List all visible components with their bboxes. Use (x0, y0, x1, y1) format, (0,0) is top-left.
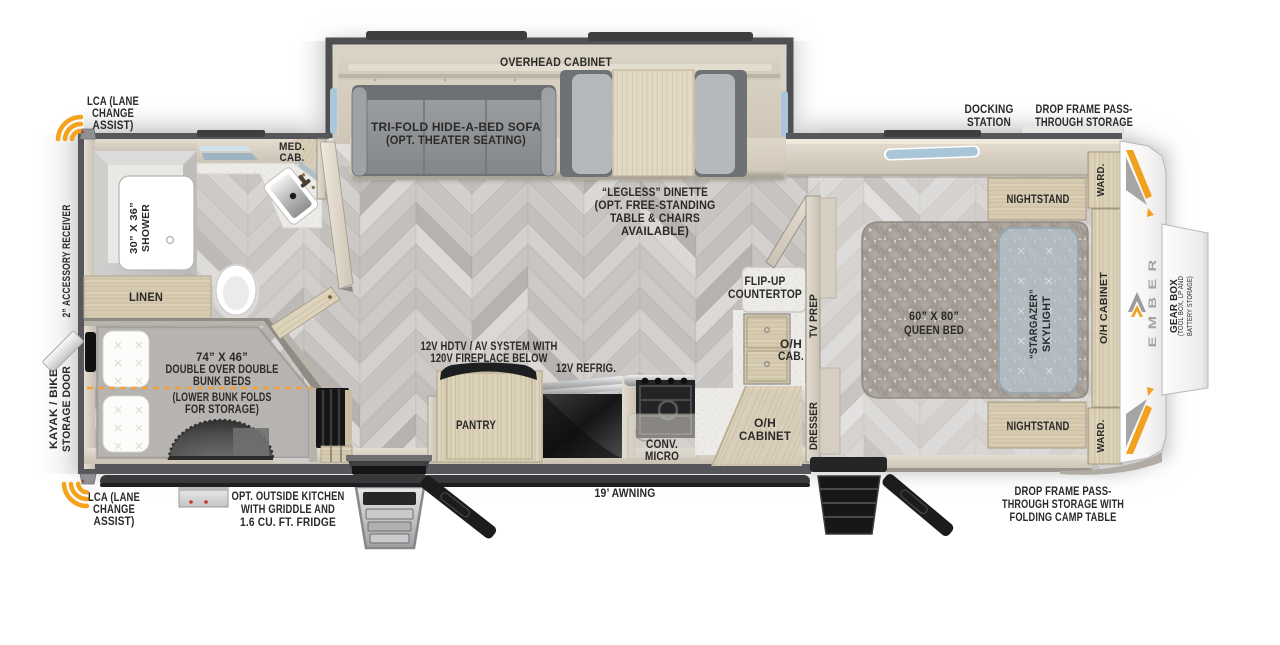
svg-text:SHOWER: SHOWER (141, 203, 152, 252)
svg-text:COUNTERTOP: COUNTERTOP (728, 289, 802, 301)
svg-text:FOR STORAGE): FOR STORAGE) (185, 404, 259, 416)
svg-text:60” X 80”: 60” X 80” (909, 311, 959, 323)
svg-text:BUNK BEDS: BUNK BEDS (193, 376, 251, 388)
svg-text:WARD.: WARD. (1095, 164, 1107, 197)
svg-text:12V HDTV / AV SYSTEM WITH: 12V HDTV / AV SYSTEM WITH (421, 341, 558, 353)
svg-text:DOCKING: DOCKING (965, 104, 1014, 116)
svg-text:THROUGH STORAGE: THROUGH STORAGE (1035, 117, 1133, 129)
svg-text:CONV.: CONV. (646, 439, 678, 451)
svg-text:WITH GRIDDLE AND: WITH GRIDDLE AND (241, 504, 335, 516)
svg-text:OVERHEAD CABINET: OVERHEAD CABINET (500, 57, 612, 69)
svg-text:KAYAK / BIKE: KAYAK / BIKE (48, 369, 60, 449)
svg-text:LCA (LANE: LCA (LANE (87, 96, 139, 108)
svg-text:FLIP-UP: FLIP-UP (745, 276, 786, 288)
svg-text:O/H: O/H (780, 339, 802, 351)
svg-text:AVAILABLE): AVAILABLE) (621, 226, 689, 238)
svg-text:30” X 36”: 30” X 36” (129, 202, 140, 254)
svg-text:FOLDING CAMP TABLE: FOLDING CAMP TABLE (1010, 512, 1117, 524)
svg-text:BATTERY STORAGE): BATTERY STORAGE) (1185, 276, 1194, 336)
svg-text:THROUGH STORAGE WITH: THROUGH STORAGE WITH (1002, 499, 1124, 511)
svg-text:120V FIREPLACE BELOW: 120V FIREPLACE BELOW (431, 353, 548, 365)
svg-text:QUEEN BED: QUEEN BED (904, 325, 964, 337)
svg-text:1.6 CU. FT. FRIDGE: 1.6 CU. FT. FRIDGE (240, 517, 336, 529)
svg-text:O/H CABINET: O/H CABINET (1098, 272, 1110, 344)
svg-text:DRESSER: DRESSER (808, 402, 820, 450)
svg-text:CHANGE: CHANGE (93, 504, 135, 516)
svg-text:TRI-FOLD HIDE-A-BED SOFA: TRI-FOLD HIDE-A-BED SOFA (371, 122, 541, 134)
svg-text:DROP FRAME PASS-: DROP FRAME PASS- (1036, 104, 1133, 116)
svg-text:“LEGLESS” DINETTE: “LEGLESS” DINETTE (602, 187, 708, 199)
svg-text:19’ AWNING: 19’ AWNING (595, 488, 656, 500)
svg-text:(LOWER BUNK FOLDS: (LOWER BUNK FOLDS (173, 392, 272, 404)
svg-text:WARD.: WARD. (1095, 420, 1107, 453)
svg-text:TV PREP: TV PREP (808, 294, 820, 338)
svg-text:O/H: O/H (754, 418, 776, 430)
svg-text:CAB.: CAB. (778, 351, 804, 363)
svg-text:CABINET: CABINET (739, 431, 791, 443)
svg-text:(TOOL BOX, LP AND: (TOOL BOX, LP AND (1176, 276, 1185, 336)
svg-text:SKYLIGHT: SKYLIGHT (1041, 296, 1053, 352)
svg-text:TABLE & CHAIRS: TABLE & CHAIRS (610, 213, 700, 225)
svg-text:LCA (LANE: LCA (LANE (88, 492, 140, 504)
svg-text:EMBER: EMBER (1147, 253, 1159, 348)
svg-text:2” ACCESSORY RECEIVER: 2” ACCESSORY RECEIVER (61, 205, 73, 318)
svg-text:DOUBLE OVER DOUBLE: DOUBLE OVER DOUBLE (166, 364, 279, 376)
svg-text:“STARGAZER”: “STARGAZER” (1028, 289, 1040, 359)
svg-text:ASSIST): ASSIST) (94, 516, 135, 528)
svg-text:12V REFRIG.: 12V REFRIG. (556, 363, 616, 375)
svg-text:PANTRY: PANTRY (456, 420, 496, 432)
svg-text:NIGHTSTAND: NIGHTSTAND (1007, 421, 1070, 433)
svg-text:(OPT. THEATER SEATING): (OPT. THEATER SEATING) (386, 135, 526, 147)
svg-text:CHANGE: CHANGE (92, 108, 134, 120)
svg-text:(OPT. FREE-STANDING: (OPT. FREE-STANDING (595, 200, 716, 212)
svg-text:OPT. OUTSIDE KITCHEN: OPT. OUTSIDE KITCHEN (232, 491, 345, 503)
svg-text:ASSIST): ASSIST) (93, 120, 134, 132)
svg-text:LINEN: LINEN (129, 292, 163, 304)
svg-text:STORAGE DOOR: STORAGE DOOR (61, 366, 73, 452)
svg-text:NIGHTSTAND: NIGHTSTAND (1007, 194, 1070, 206)
svg-text:STATION: STATION (967, 117, 1011, 129)
svg-text:CAB.: CAB. (280, 152, 305, 164)
svg-text:DROP FRAME PASS-: DROP FRAME PASS- (1015, 486, 1112, 498)
svg-text:MICRO: MICRO (645, 451, 679, 463)
svg-text:74” X 46”: 74” X 46” (196, 352, 248, 364)
